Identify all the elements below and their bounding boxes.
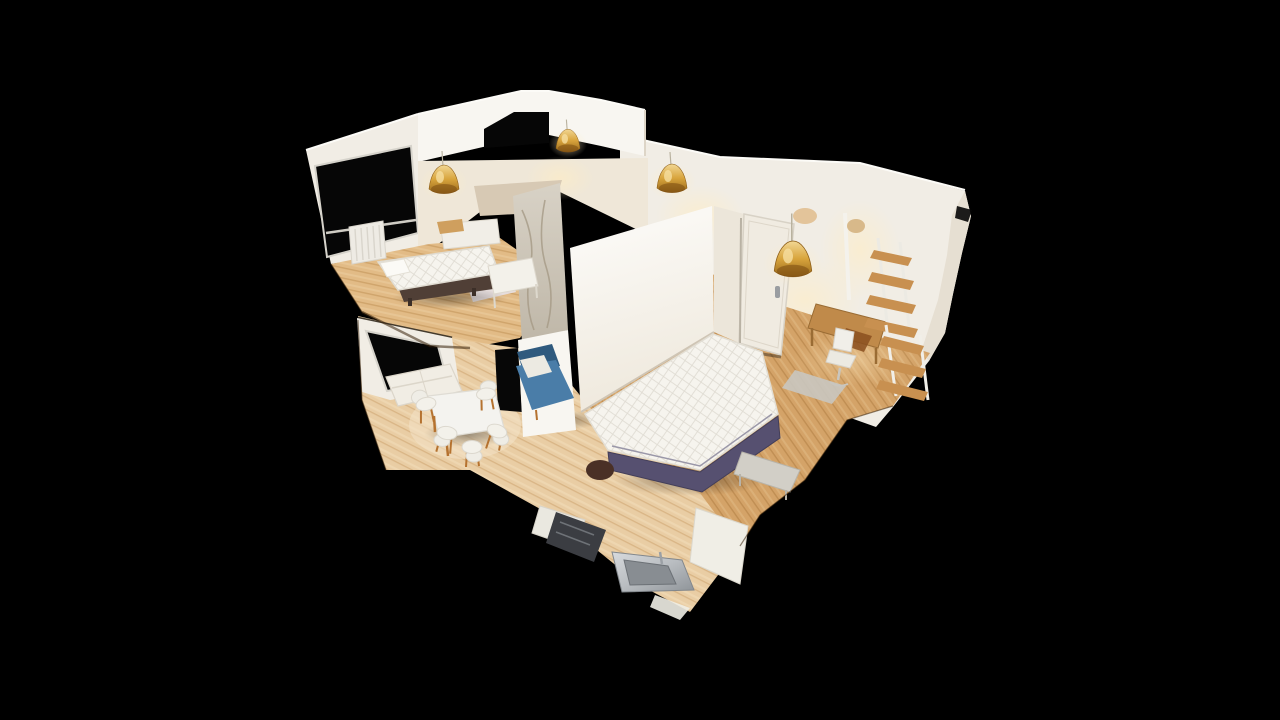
dark-stool [586, 460, 614, 480]
door-handle [775, 286, 780, 298]
door-jamb [740, 218, 741, 343]
bed1-leg [408, 298, 412, 306]
radiator [349, 221, 386, 264]
hanging-item [847, 219, 865, 233]
dollhouse-3d-canvas[interactable] [0, 0, 1280, 720]
scan-hole [495, 348, 522, 412]
hanging-item [793, 208, 817, 224]
bed1-leg [472, 288, 476, 296]
